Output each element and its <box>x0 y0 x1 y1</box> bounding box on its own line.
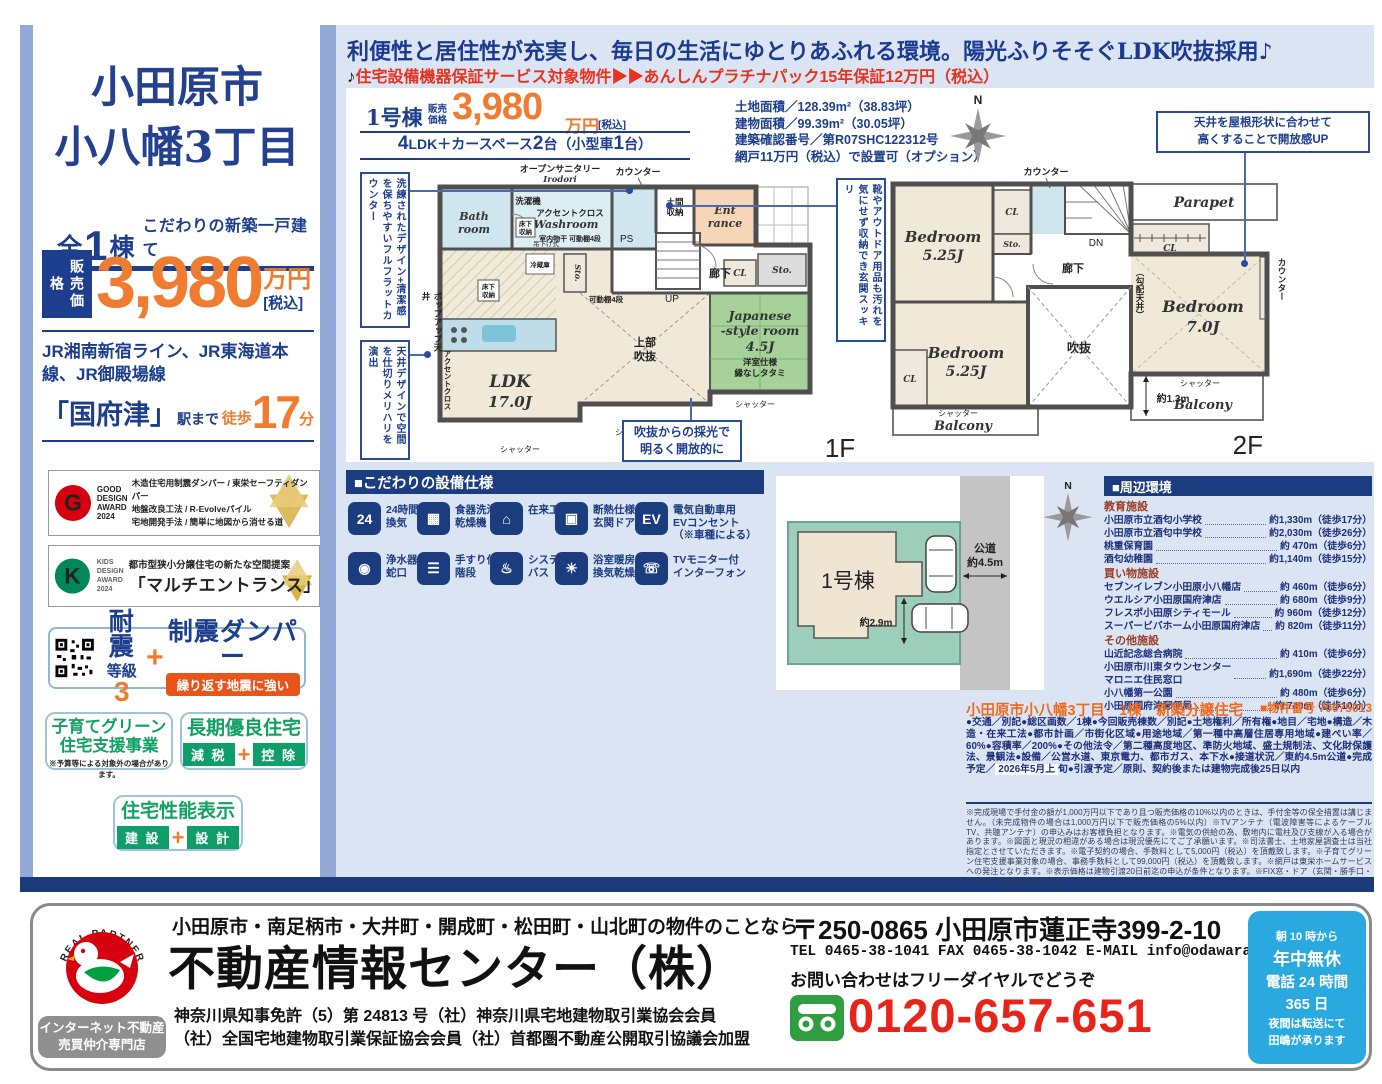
label-japanese-room: Japanese <box>727 308 792 323</box>
spec-dishwasher: ▦食器洗浄 乾燥機 <box>417 502 497 535</box>
callout-dot <box>626 187 633 194</box>
seinou-title: 住宅性能表示 <box>115 801 241 823</box>
warranty-text: 住宅設備機器保証サービス対象物件▶▶あんしんプラチナパック15年保証12万円（税… <box>356 69 1000 86</box>
rail-lines: JR湘南新宿ライン、JR東海道本線、JR御殿場線 <box>42 340 314 386</box>
label-void-2f: 吹抜 <box>1067 340 1092 355</box>
seinou-tag1: 建 設 <box>117 826 169 849</box>
bath-heater-icon: ☀ <box>555 552 588 585</box>
label-road: 公道 <box>974 541 996 555</box>
compass-icon: N <box>946 92 1010 166</box>
dotted-leader <box>1156 542 1277 551</box>
callout-leader-line <box>1244 151 1246 263</box>
dotted-leader <box>1225 596 1277 605</box>
label-accent-vertical: アクセントクロス <box>442 350 453 420</box>
label-dn: DN <box>1089 238 1103 249</box>
rule <box>360 158 690 160</box>
dotted-leader <box>1234 670 1266 679</box>
license-line1: 神奈川県知事免許（5）第 24813 号（社）神奈川県宅地建物取引業協会会員 <box>174 1005 750 1028</box>
walk-minutes: 17 <box>252 392 299 432</box>
tel-fax-email: TEL 0465-38-1041 FAX 0465-38-1042 E-MAIL… <box>790 944 1312 960</box>
label-ps: PS <box>620 234 634 245</box>
internet-badge: インターネット不動産 売買仲介専門店 <box>38 1016 166 1058</box>
facility-distance: 約1,330m（徒歩17分） <box>1269 514 1372 527</box>
facility-name: スーパービバホーム小田原国府津店 <box>1104 620 1260 633</box>
floorplan-2f: カウンター Parapet CL CL Sto. CL DN 廊下 Bedroo… <box>878 162 1292 462</box>
price-label: 販売 価格 <box>428 104 447 126</box>
facility-distance: 約2,030m（徒歩26分） <box>1269 527 1372 540</box>
label-washer: 洗濯機 <box>515 196 541 206</box>
label-hallway-2f: 廊下 <box>1062 261 1084 275</box>
entrance-callout: 靴やアウトドア用品も汚れを気にせず収納でき玄関スッキリ <box>836 178 886 342</box>
counter-callout: 洗練されたデザイン+清潔感を保ちやすいフルフラットカウンター <box>360 172 410 328</box>
fine-print: ※完成現場で手付金の額が1,000万円以下であり且つ販売価格の10%以内のときは… <box>966 802 1372 886</box>
stairs-icon: ☰ <box>417 552 450 585</box>
label-tsurisage: 吊下げ式 <box>533 239 560 248</box>
kids-line2: 「マルチエントランス」 <box>129 571 315 596</box>
real-partner-bird-logo: REAL PARTNER <box>50 910 154 1014</box>
facility-distance: 約 470m（徒歩6分） <box>1280 540 1372 553</box>
label-up: UP <box>665 294 679 305</box>
hours-line: 田嶋が承ります <box>1248 1032 1366 1048</box>
music-note-icon: ♪ <box>347 67 356 86</box>
facility-name: 小田原市立酒匂中学校 <box>1104 527 1202 540</box>
label-bedroom2: Bedroom <box>927 344 1005 362</box>
label-bath2: room <box>458 223 490 236</box>
label-cl-2f3: CL <box>903 375 917 385</box>
facility-name: 酒匂幼稚園 <box>1104 553 1153 566</box>
group-title: その他施設 <box>1104 634 1372 648</box>
seishin-label: 制震ダンパー <box>166 620 300 670</box>
choki-badge: 長期優良住宅 減 税 + 控 除 <box>180 712 308 770</box>
price-unit: 万円 <box>263 268 311 292</box>
ceiling-callout: 天井を屋根形状に合わせて 高くすることで開放感UP <box>1156 111 1370 153</box>
label-cl-2f: CL <box>1163 244 1177 254</box>
label-tatami-note: 洋室仕様 <box>743 357 778 367</box>
facility-name: 桃重保育園 <box>1104 540 1153 553</box>
label-japanese-room2: -style room <box>721 323 800 338</box>
label-japanese-size: 4.5J <box>746 340 776 355</box>
station-name: 「国府津」 <box>42 393 177 432</box>
earthquake-resistance-badge: 耐震 等級3 + 制震ダンパー 繰り返す地震に強い <box>48 627 306 689</box>
completion-date: 2026年5月上 <box>995 764 1058 775</box>
label-underfloor4: 収納 <box>482 290 496 299</box>
label-hallway: 廊下 <box>709 266 731 280</box>
site-plan-panel: 1号棟 公道 約4.5m 約2.9m <box>776 476 1044 690</box>
label-counter: カウンター <box>615 166 660 177</box>
grade-number: 3 <box>114 676 130 707</box>
facility-distance: 約1,690m（徒歩22分） <box>1269 668 1372 681</box>
facility-name: 小田原市川東タウンセンター マロニエ住民窓口 <box>1104 661 1231 687</box>
plus-sign: + <box>172 829 185 847</box>
spec-label: 24時間 換気 <box>386 502 419 529</box>
quake-pill: 繰り返す地震に強い <box>166 673 300 696</box>
gd-line1: 木造住宅用制震ダンパー / 東栄セーフティダンパー <box>132 477 315 503</box>
layout-end: 台） <box>624 136 652 152</box>
callout-leader-line <box>672 205 836 207</box>
facility-name: 山近記念総合病院 <box>1104 648 1182 661</box>
label-cl: CL <box>733 269 747 279</box>
unit-name: 1号棟 <box>366 102 423 132</box>
ev-outlet-icon: EV <box>635 502 668 535</box>
label-underfloor2: 収納 <box>519 227 533 236</box>
free-dial-number: 0120-657-651 <box>848 988 1153 1043</box>
spec-label: 電気自動車用 EVコンセント （※車種による） <box>673 502 757 542</box>
gd-line3: 宅地開発手法 / 簡単に地図から消せる道 <box>132 516 315 529</box>
label-sto: Sto. <box>772 266 792 276</box>
intercom-icon: ☏ <box>635 552 668 585</box>
list-item: 酒匂幼稚園約1,140m（徒歩15分） <box>1104 553 1372 566</box>
facility-name: セブンイレブン小田原小八幡店 <box>1104 581 1241 594</box>
plus-sign: + <box>146 645 164 671</box>
headline: 利便性と居住性が充実し、毎日の生活にゆとりあふれる環境。陽光ふりそそぐLDK吹抜… <box>347 34 1273 66</box>
floorplan-1f: オープンサニタリー Irodori カウンター 洗濯機 アクセントクロス Was… <box>420 162 880 462</box>
label-bedroom1: Bedroom <box>904 228 982 246</box>
void-light-callout: 吹抜からの採光で 明るく開放的に <box>622 420 742 462</box>
dotted-leader <box>1176 689 1277 698</box>
dotted-leader <box>1205 529 1266 538</box>
price-amount: 3,980 <box>96 250 261 316</box>
label-cl-2f2: CL <box>1005 208 1019 218</box>
label-open-sanitary: オープンサニタリー <box>520 163 600 174</box>
facility-distance: 約 960m（徒歩12分） <box>1275 607 1372 620</box>
dotted-leader <box>1263 622 1272 631</box>
walk-unit: 分 <box>299 408 314 429</box>
good-design-logo-text: GOOD DESIGN AWARD 2024 <box>97 485 128 521</box>
title-line2: 小八幡3丁目 <box>33 118 321 178</box>
dotted-leader <box>1185 650 1277 659</box>
kids-line1: 都市型狭小分譲住宅の新たな空間提案 <box>129 557 315 571</box>
surroundings-panel: ■周辺環境 教育施設 小田原市立酒匂小学校約1,330m（徒歩17分） 小田原市… <box>1104 476 1372 713</box>
svg-text:N: N <box>974 93 983 107</box>
qr-code-icon <box>54 634 95 682</box>
left-stripe <box>20 25 33 877</box>
label-irodori: Irodori <box>542 175 576 185</box>
station-suffix: 駅まで <box>177 409 219 429</box>
license-line2: （社）全国宅地建物取引業保証協会会員（社）首都圏不動産公開取引協議会加盟 <box>174 1028 750 1051</box>
label-bedroom2-size: 5.25J <box>946 364 988 380</box>
price-block: 販売価格 3,980 万円 [税込] <box>42 250 314 318</box>
dotted-leader <box>1205 516 1266 525</box>
unit-price: 3,980 <box>452 86 542 129</box>
svg-text:N: N <box>1064 480 1072 492</box>
surroundings-header: ■周辺環境 <box>1104 476 1372 496</box>
label-road-width: 約4.5m <box>967 555 1003 569</box>
facility-name: 小田原市立酒匂小学校 <box>1104 514 1202 527</box>
facility-distance: 約 410m（徒歩6分） <box>1280 648 1372 661</box>
spec-label: 断熱仕様 玄関ドア <box>593 502 635 529</box>
free-dial-icon <box>790 995 844 1041</box>
label-lot-width: 約2.9m <box>860 616 893 629</box>
gd-line2: 地盤改良工法 / R-Evolveパイル <box>132 503 315 516</box>
spec-intercom: ☏TVモニター付 インターフォン <box>635 552 746 585</box>
label-fridge: 冷蔵庫 <box>530 260 550 269</box>
layout-text: LDK＋カースペース <box>409 136 533 152</box>
walk-label: 徒歩 <box>222 407 252 428</box>
ventilation-icon: 24 <box>348 502 381 535</box>
dishwasher-icon: ▦ <box>417 502 450 535</box>
property-title: 小田原市 小八幡3丁目 <box>33 58 321 178</box>
callout-leader-line <box>392 190 630 192</box>
label-building-1: 1号棟 <box>821 570 875 593</box>
rule <box>42 440 314 442</box>
title-line1: 小田原市 <box>33 58 321 118</box>
seinou-badge: 住宅性能表示 建 設 + 設 計 <box>113 795 243 851</box>
company-name: 不動産情報センター（株） <box>168 930 744 999</box>
kids-design-logo-icon: K <box>53 556 92 596</box>
facility-distance: 約1,140m（徒歩15分） <box>1269 553 1372 566</box>
label-counter-2f: カウンター <box>1023 166 1068 177</box>
label-entrance2: rance <box>708 217 743 230</box>
list-item: 小田原市川東タウンセンター マロニエ住民窓口約1,690m（徒歩22分） <box>1104 661 1372 687</box>
unit-price-tax: [税込] <box>598 117 626 132</box>
list-item: 桃重保育園約 470m（徒歩6分） <box>1104 540 1372 553</box>
label-shutter-2f2: シャッター <box>1180 379 1220 388</box>
label-balcony-depth: 約1.3m <box>1157 392 1190 405</box>
construction-icon: ⌂ <box>490 502 523 535</box>
svg-text:K: K <box>64 563 80 588</box>
facility-name: フレスポ小田原シティモール <box>1104 607 1231 620</box>
list-item: セブンイレブン小田原小八幡店約 460m（徒歩6分） <box>1104 581 1372 594</box>
kosodate-note: ※予算等による対象外の場合があります。 <box>47 758 171 780</box>
faucet-icon: ◉ <box>348 552 381 585</box>
callout-leader-line <box>690 398 692 420</box>
label-sto-2f: Sto. <box>1003 239 1021 249</box>
dotted-leader <box>1156 555 1266 564</box>
label-sto2: Sto. <box>573 264 583 282</box>
label-bedroom3: Bedroom <box>1161 297 1244 316</box>
choki-tag1: 減 税 <box>183 743 235 766</box>
hours-line: 365 日 <box>1248 993 1366 1014</box>
layout-4: 4 <box>398 133 409 154</box>
flyer-page: 小田原市 小八幡3丁目 全 1 棟 こだわりの新築一戸建て 販売価格 3,980… <box>0 0 1382 1084</box>
seinou-tag2: 設 計 <box>187 826 239 849</box>
facility-distance: 約 460m（徒歩6分） <box>1280 581 1372 594</box>
hours-line: 朝 10 時から <box>1248 928 1366 944</box>
list-item: 山近記念総合病院約 410m（徒歩6分） <box>1104 648 1372 661</box>
spec-bath-dryer: ☀浴室暖房 換気乾燥機 <box>555 552 646 585</box>
spec-label: TVモニター付 インターフォン <box>673 552 746 579</box>
label-washroom: Washroom <box>534 218 599 231</box>
label-bedroom3-size: 7.0J <box>1186 318 1220 336</box>
label-2f: 2F <box>1233 430 1263 460</box>
list-item: スーパービバホーム小田原国府津店約 820m（徒歩11分） <box>1104 620 1372 633</box>
spec-ev-outlet: EV電気自動車用 EVコンセント （※車種による） <box>635 502 757 542</box>
car-icon <box>926 536 956 592</box>
spec-label: 浄水器 蛇口 <box>386 552 418 579</box>
hours-line: 夜間は転送にて <box>1248 1015 1366 1031</box>
good-design-logo-icon: G <box>53 482 93 524</box>
callout-dot <box>666 202 673 209</box>
spec-insulated-door: ▣断熱仕様 玄関ドア <box>555 502 635 535</box>
label-void: 上部 <box>634 335 656 349</box>
dotted-leader <box>1234 609 1272 618</box>
hours-line: 電話 24 時間 <box>1248 971 1366 992</box>
kosodate-badge: 子育てグリーン 住宅支援事業 ※予算等による対象外の場合があります。 <box>45 712 173 770</box>
label-counter-right: カウンター <box>1276 258 1288 324</box>
layout-2: 2 <box>533 133 544 154</box>
layout-1: 1 <box>613 133 624 154</box>
layout-line: 4LDK＋カースペース2台（小型車1台） <box>360 133 690 155</box>
spec-water-purifier: ◉浄水器 蛇口 <box>348 552 418 585</box>
label-bath: Bath <box>458 210 489 223</box>
label-popup-ceiling: ポップアップ天井 <box>420 292 444 358</box>
callout-dot <box>1241 260 1248 267</box>
sidebar-divider-stripe <box>320 25 336 877</box>
price-label: 販売価格 <box>42 250 92 318</box>
label-1f: 1F <box>825 433 855 462</box>
group-title: 買い物施設 <box>1104 567 1372 581</box>
group-title: 教育施設 <box>1104 500 1372 514</box>
label-ldk: LDK <box>488 372 532 392</box>
taishin-label: 耐震 <box>99 610 144 660</box>
facility-name: ウエルシア小田原国府津店 <box>1104 594 1222 607</box>
kids-design-award: K KIDS DESIGN AWARD 2024 都市型狭小分譲住宅の新たな空間… <box>48 545 320 607</box>
company-address: 〒250-0865 小田原市蓮正寺399-2-10 <box>792 910 1221 947</box>
rule <box>42 330 314 332</box>
list-item: 小田原市立酒匂中学校約2,030m（徒歩26分） <box>1104 527 1372 540</box>
compass-icon: N <box>1040 478 1096 544</box>
bath-icon: ♨ <box>490 552 523 585</box>
label-underfloor: 床下 <box>519 219 533 228</box>
list-item: フレスポ小田原シティモール約 960m（徒歩12分） <box>1104 607 1372 620</box>
property-details: ●交通／別記●総区画数／1棟●今回販売棟数／別記●土地権利／所有権●地目／宅地●… <box>966 717 1372 776</box>
choki-title: 長期優良住宅 <box>182 718 306 740</box>
svg-text:G: G <box>64 490 82 516</box>
kosodate-line2: 住宅支援事業 <box>47 737 171 756</box>
facility-distance: 約 680m（徒歩9分） <box>1280 594 1372 607</box>
kosodate-line1: 子育てグリーン <box>47 718 171 737</box>
label-shutter-2f: シャッター <box>938 409 978 418</box>
site-plan: 1号棟 公道 約4.5m 約2.9m <box>776 476 1044 690</box>
layout-text2: 台（小型車 <box>543 136 613 152</box>
business-hours-box: 朝 10 時から 年中無休 電話 24 時間 365 日 夜間は転送にて 田嶋が… <box>1248 911 1366 1064</box>
choki-tag2: 控 除 <box>253 743 305 766</box>
good-design-award: G GOOD DESIGN AWARD 2024 木造住宅用制震ダンパー / 東… <box>48 470 320 536</box>
dotted-leader <box>1244 583 1277 592</box>
label-shelf: 可動棚4段 <box>589 294 624 304</box>
spec-handrail-stairs: ☰手すり付 階段 <box>417 552 497 585</box>
label-void2: 吹抜 <box>634 349 657 363</box>
warranty-line: ♪住宅設備機器保証サービス対象物件▶▶あんしんプラチナパック15年保証12万円（… <box>347 63 999 87</box>
specs-header: ■こだわりの設備仕様 <box>346 470 764 494</box>
label-bedroom1-size: 5.25J <box>923 248 965 264</box>
hours-line: 年中無休 <box>1248 945 1366 970</box>
ceiling-design-callout: 天井デザインで空間を仕切りメリハリを演出 <box>360 340 410 460</box>
label-balcony1: Balcony <box>933 419 993 434</box>
property-body2: 旬●引渡予定／原則、契約後または建物完成後25日以内 <box>1058 764 1300 775</box>
label-underfloor3: 床下 <box>482 282 496 291</box>
label-tatami-note2: 縁なしタタミ <box>734 368 785 378</box>
kids-design-logo-text: KIDS DESIGN AWARD 2024 <box>97 558 124 594</box>
label-slope-ceiling: （勾配天井） <box>1134 268 1146 348</box>
station-row: 「国府津」 駅まで 徒歩 17 分 <box>42 392 314 432</box>
facility-distance: 約 820m（徒歩11分） <box>1275 620 1372 633</box>
car-icon <box>912 604 968 632</box>
label-shutter: シャッター <box>500 445 540 454</box>
door-icon: ▣ <box>555 502 588 535</box>
label-ldk-size: 17.0J <box>488 393 533 411</box>
spec-ventilation: 2424時間 換気 <box>348 502 419 535</box>
list-item: ウエルシア小田原国府津店約 680m（徒歩9分） <box>1104 594 1372 607</box>
list-item: 小田原市立酒匂小学校約1,330m（徒歩17分） <box>1104 514 1372 527</box>
label-parapet: Parapet <box>1173 195 1235 211</box>
plus-sign: + <box>238 746 251 764</box>
price-tax: [税込] <box>263 292 311 313</box>
label-shutter: シャッター <box>735 400 775 409</box>
label-accent-cloth: アクセントクロス <box>536 208 604 218</box>
